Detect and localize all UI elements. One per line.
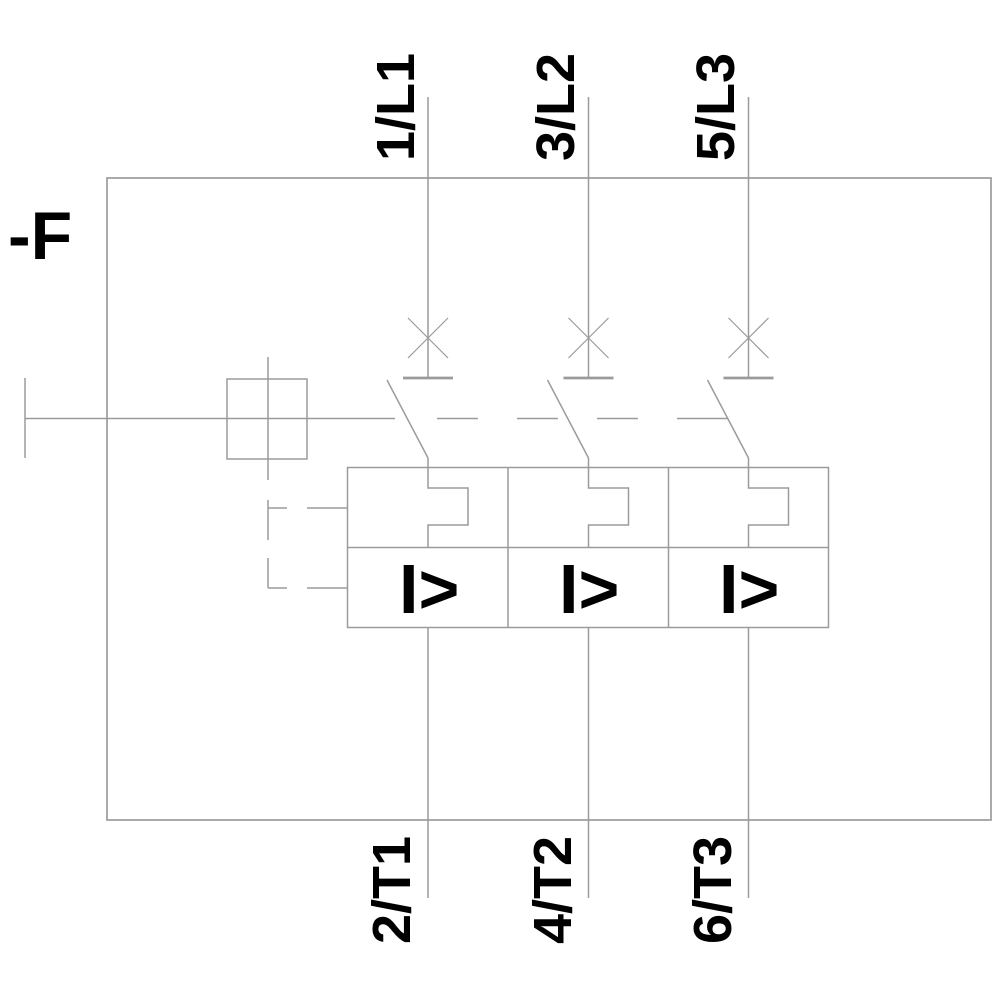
terminal-label-text: 6/T3 xyxy=(686,836,740,944)
pole-1 xyxy=(387,97,468,898)
terminal-label-text: 3/L2 xyxy=(529,53,583,161)
device-outline-box xyxy=(107,178,991,820)
overcurrent-trip-symbol-1: I> xyxy=(399,556,459,622)
terminal-label-text: 5/L3 xyxy=(689,53,743,161)
terminal-label-text: 2/T1 xyxy=(365,836,419,944)
terminal-label-1L1: 1/L1 xyxy=(367,50,425,164)
pole-3 xyxy=(708,97,789,898)
overcurrent-trip-symbol-3: I> xyxy=(719,556,779,622)
thermal-overload-symbol-2 xyxy=(589,468,629,548)
thermal-overload-symbol-3 xyxy=(749,468,789,548)
terminal-label-text: 1/L1 xyxy=(369,53,423,161)
terminal-label-6T3: 6/T3 xyxy=(684,833,742,947)
terminal-label-2T1: 2/T1 xyxy=(363,833,421,947)
schematic-canvas: -F 1/L1 3/L2 5/L3 I> I> I> 2/T1 4/T2 6/T… xyxy=(0,0,1000,1000)
terminal-label-text: 4/T2 xyxy=(526,836,580,944)
device-designation-label: -F xyxy=(8,202,72,270)
terminal-label-4T2: 4/T2 xyxy=(524,833,582,947)
overcurrent-trip-symbol-2: I> xyxy=(559,556,619,622)
terminal-label-5L3: 5/L3 xyxy=(687,50,745,164)
pole-2 xyxy=(548,97,629,898)
circuit-linework xyxy=(0,0,1000,1000)
terminal-label-3L2: 3/L2 xyxy=(527,50,585,164)
thermal-overload-symbol-1 xyxy=(428,468,468,548)
operating-mechanism xyxy=(25,357,728,588)
